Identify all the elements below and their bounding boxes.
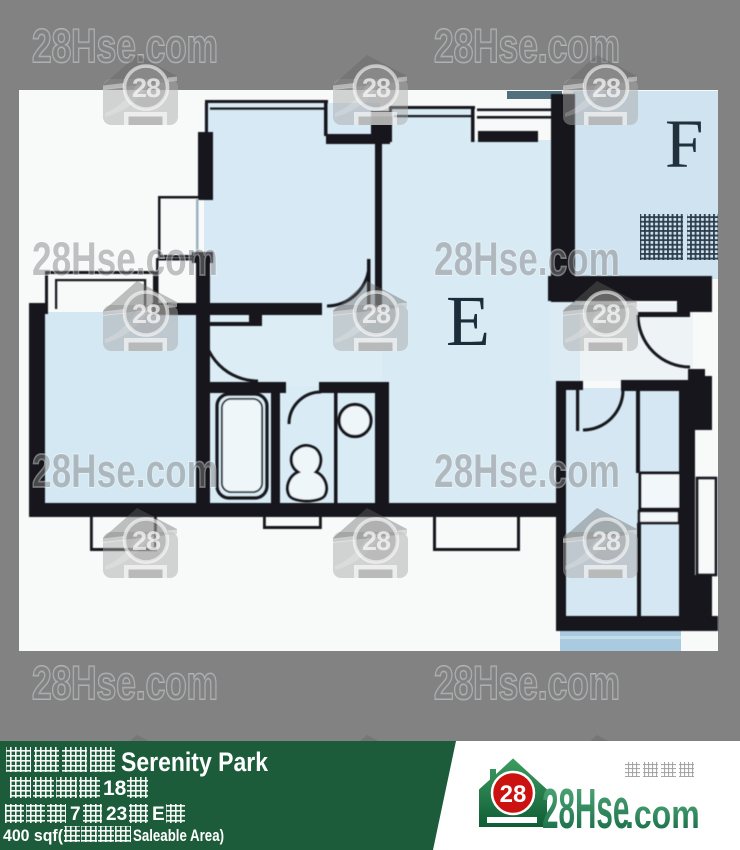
- svg-text:Saleable Area): Saleable Area): [133, 826, 224, 845]
- svg-text:F: F: [665, 106, 703, 182]
- svg-text:E: E: [446, 281, 490, 361]
- svg-text:400 sqf(: 400 sqf(: [3, 826, 63, 845]
- svg-text:E: E: [152, 804, 165, 825]
- svg-text:.com: .com: [625, 792, 700, 837]
- svg-text:23: 23: [106, 804, 127, 825]
- svg-text:18: 18: [103, 777, 127, 800]
- svg-text:28Hse: 28Hse: [542, 777, 629, 841]
- svg-text:28: 28: [500, 781, 527, 808]
- svg-text:Serenity Park: Serenity Park: [121, 747, 269, 777]
- svg-text:7: 7: [70, 804, 81, 825]
